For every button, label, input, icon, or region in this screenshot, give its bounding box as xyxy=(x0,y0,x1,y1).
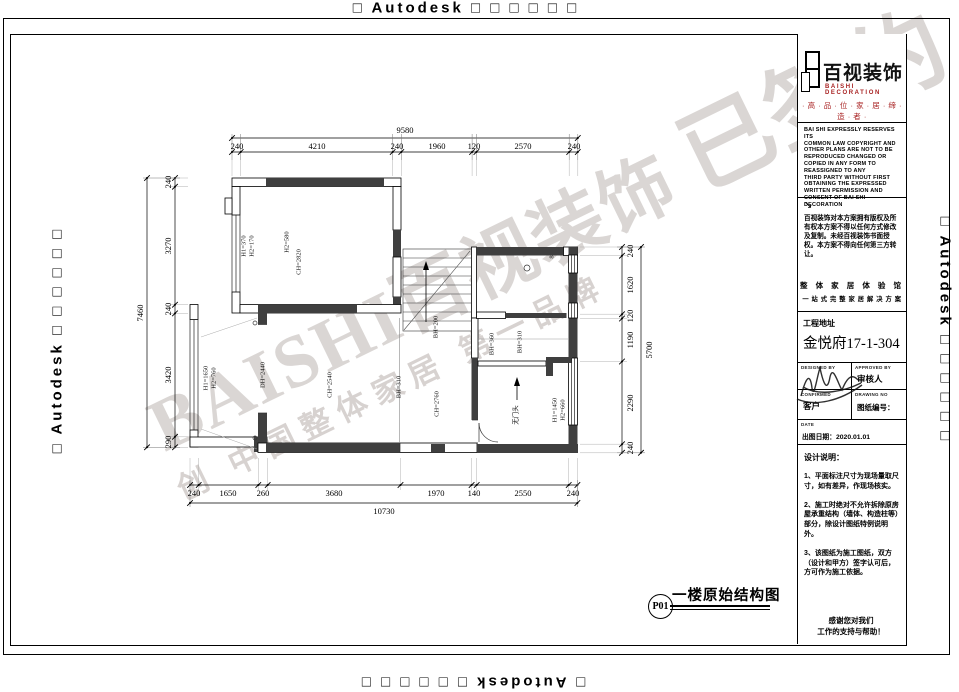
sheet-title-group: P01 一楼原始结构图 xyxy=(646,583,796,623)
note-item: 1、平面标注尺寸为现场量取尺寸，如有差异，作现场核实。 xyxy=(804,472,900,492)
drawing-no-cn: 图纸编号： xyxy=(857,402,895,413)
arrow-icon: ↘ xyxy=(804,201,900,211)
designed-by-cell: DESIGNED BY xyxy=(798,363,852,389)
confirmed-label: CONFIRMED xyxy=(801,392,831,397)
project-address-section: 工程地址 金悦府17-1-304 xyxy=(798,312,906,363)
notes-title: 设计说明： xyxy=(804,452,900,463)
autodesk-stamp-bottom: □ Autodesk □ □ □ □ □ □ xyxy=(359,674,585,691)
copyright-line: OTHER PLANS ARE NOT TO BE xyxy=(804,147,900,154)
date-label: DATE xyxy=(801,422,814,427)
customer-row: CONFIRMED 客户 DRAWING NO 图纸编号： xyxy=(798,390,906,420)
sheet-inner-border xyxy=(10,34,907,646)
copyright-line: COPIED IN ANY FORM TO xyxy=(804,161,900,168)
baishi-logo-icon-small xyxy=(801,72,810,92)
cad-sheet: BAISHI百视装饰 已签约 创 中国整体家居 第一品牌 □ Autodesk … xyxy=(0,0,959,692)
copyright-cn-text: 百视装饰对本方案拥有版权及所有权本方案不得以任何方式修改及复制。未经百视装饰书面… xyxy=(804,214,900,259)
copyright-line: WRITTEN PERMISSION AND xyxy=(804,188,900,195)
thanks-note: 感谢您对我们 工作的支持与帮助！ xyxy=(802,615,900,637)
autodesk-stamp-right: □ Autodesk □ □ □ □ □ □ xyxy=(937,217,954,443)
title-block: 百视装饰 BAISHI DECORATION · 高 · 品 · 位 · 家 ·… xyxy=(797,34,906,644)
approved-by-label: APPROVED BY xyxy=(855,365,891,370)
logo-section: 百视装饰 BAISHI DECORATION · 高 · 品 · 位 · 家 ·… xyxy=(798,34,906,123)
address-value: 金悦府17-1-304 xyxy=(803,332,900,353)
copyright-line: THIRD PARTY WITHOUT FIRST xyxy=(804,175,900,182)
copyright-cn-section: ↘ 百视装饰对本方案拥有版权及所有权本方案不得以任何方式修改及复制。未经百视装饰… xyxy=(798,198,906,312)
designed-by-label: DESIGNED BY xyxy=(801,365,835,370)
note-item: 2、施工时绝对不允许拆除原房屋承重结构（墙体、构造柱等）部分，除设计图纸特例说明… xyxy=(804,501,900,540)
designer-row: DESIGNED BY APPROVED BY 审核人 xyxy=(798,363,906,390)
title-underline xyxy=(670,605,770,607)
confirmed-cell: CONFIRMED 客户 xyxy=(798,390,852,419)
autodesk-stamp-top: □ Autodesk □ □ □ □ □ □ xyxy=(353,0,579,17)
copyright-en-section: BAI SHI EXPRESSLY RESERVES ITS COMMON LA… xyxy=(798,123,906,198)
title-underline-thin xyxy=(670,609,770,610)
autodesk-stamp-left: □ Autodesk □ □ □ □ □ □ xyxy=(49,227,66,453)
company-tagline: · 高 · 品 · 位 · 家 · 居 · 缔 · 造 · 者 · xyxy=(798,100,906,122)
copyright-line: BAI SHI EXPRESSLY RESERVES ITS xyxy=(804,127,900,141)
copyright-line: COMMON LAW COPYRIGHT AND xyxy=(804,141,900,148)
slogan-secondary: 一 站 式 完 整 家 居 解 决 方 案 xyxy=(798,294,906,303)
approved-by-cell: APPROVED BY 审核人 xyxy=(852,363,906,389)
customer-label: 客户 xyxy=(803,400,820,412)
company-name: 百视装饰 xyxy=(823,58,903,85)
approver-label: 审核人 xyxy=(857,373,883,385)
date-row: DATE 出图日期：2020.01.01 xyxy=(798,420,906,445)
slogan-primary: 整 体 家 居 体 验 馆 xyxy=(798,280,906,291)
copyright-line: REPRODUCED CHANGED OR xyxy=(804,154,900,161)
address-label: 工程地址 xyxy=(803,318,835,329)
note-item: 3、该图纸为施工图纸，双方（设计和甲方）签字认可后，方可作为施工依据。 xyxy=(804,549,900,578)
company-name-en: BAISHI DECORATION xyxy=(825,84,906,96)
date-value: 出图日期：2020.01.01 xyxy=(802,431,870,441)
drawing-no-cell: DRAWING NO 图纸编号： xyxy=(852,390,906,419)
drawing-no-label: DRAWING NO xyxy=(855,392,888,397)
design-notes-section: 设计说明： 1、平面标注尺寸为现场量取尺寸，如有差异，作现场核实。 2、施工时绝… xyxy=(798,445,906,644)
copyright-line: OBTAINING THE EXPRESSED xyxy=(804,181,900,188)
sheet-title: 一楼原始结构图 xyxy=(672,584,781,605)
copyright-line: REASSIGNED TO ANY xyxy=(804,168,900,175)
